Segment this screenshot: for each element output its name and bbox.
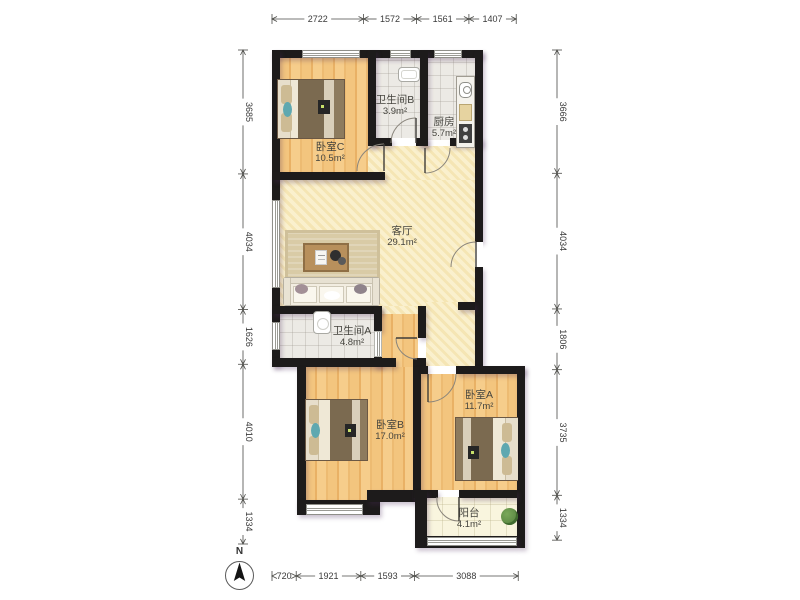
bed-pillow <box>502 423 512 442</box>
dimension-arrow <box>414 574 419 579</box>
entrance-door-opening <box>475 242 483 267</box>
dimension-arrow <box>555 370 560 375</box>
room-label-bedroom-c: 卧室C 10.5m² <box>315 141 345 165</box>
wall <box>374 306 382 331</box>
wall <box>475 50 483 242</box>
dimension-arrow <box>241 305 246 310</box>
dimension-arrow <box>241 50 246 55</box>
dimension-label: 1921 <box>318 571 338 581</box>
wall <box>420 50 428 146</box>
window-bathroom-b <box>390 50 411 58</box>
plant <box>501 508 518 525</box>
kitchen-counter <box>456 76 475 148</box>
room-name: 卧室B <box>375 419 405 431</box>
dimension-arrow <box>272 574 277 579</box>
room-area: 4.1m² <box>457 519 481 530</box>
bed-pillow-teal <box>311 423 320 438</box>
dimension-arrow <box>555 304 560 309</box>
dimension-arrow <box>241 174 246 179</box>
dimension-arrow <box>241 494 246 499</box>
window-bathroom-a <box>272 322 280 350</box>
room-area: 11.7m² <box>465 401 494 412</box>
wall <box>368 138 392 146</box>
compass-north-label: N <box>231 546 248 557</box>
room-name: 卧室A <box>465 389 494 401</box>
sofa-pillow <box>354 284 367 294</box>
dimension-arrow <box>469 17 474 22</box>
dimension-label: 1334 <box>244 512 254 532</box>
dimension-arrow <box>409 574 414 579</box>
bed-tray <box>345 424 356 437</box>
dimension-arrow <box>555 365 560 370</box>
dimension-arrow <box>511 17 516 22</box>
wall <box>418 306 426 338</box>
dimension-arrow <box>364 17 369 22</box>
dimension-arrow <box>464 17 469 22</box>
dimension-arrow <box>416 17 421 22</box>
bed-pillow <box>309 405 319 424</box>
wall <box>421 366 428 374</box>
dimension-arrow <box>555 535 560 540</box>
room-name: 卧室C <box>315 141 345 153</box>
sofa-pillow <box>295 284 308 294</box>
room-area: 17.0m² <box>375 431 405 442</box>
window-living-room <box>272 200 280 288</box>
dimension-arrow <box>296 574 301 579</box>
wall <box>517 366 525 548</box>
dimension-label: 2722 <box>308 14 328 24</box>
dimension-arrow <box>361 574 366 579</box>
window-bedroom-b <box>306 504 363 515</box>
bed-pillow <box>502 456 512 475</box>
dimension-label: 3088 <box>456 571 476 581</box>
window-bedroom-c <box>302 50 360 58</box>
room-area: 5.7m² <box>432 128 456 139</box>
wall <box>456 366 525 374</box>
kitchen-sink <box>459 82 472 98</box>
dimension-arrow <box>555 168 560 173</box>
kitchen-stove <box>459 124 472 143</box>
bathroom-a-door-opening <box>374 331 382 357</box>
wall <box>367 490 415 502</box>
room-area: 29.1m² <box>387 237 417 248</box>
wall <box>458 302 475 310</box>
sofa-throw <box>324 291 340 300</box>
dimension-arrow <box>356 574 361 579</box>
bed-bedroom-c <box>278 80 344 138</box>
sofa <box>283 277 380 306</box>
room-name: 厨房 <box>432 116 456 128</box>
dimension-label: 1407 <box>483 14 503 24</box>
table-decor <box>338 257 346 265</box>
bed-tray <box>468 446 479 459</box>
dimension-label: 4034 <box>558 231 568 251</box>
window-balcony <box>427 537 517 546</box>
room-label-bedroom-a: 卧室A 11.7m² <box>465 389 494 413</box>
room-label-bedroom-b: 卧室B 17.0m² <box>375 419 405 443</box>
bed-bedroom-b <box>306 400 367 460</box>
room-area: 3.9m² <box>376 106 415 117</box>
dimension-arrow <box>291 574 296 579</box>
dimension-label: 4010 <box>244 422 254 442</box>
dimension-arrow <box>555 50 560 55</box>
dimension-arrow <box>272 17 277 22</box>
bed-pillow-teal <box>283 102 292 117</box>
bed-pillow-teal <box>501 443 510 458</box>
compass <box>225 561 254 590</box>
table-paper <box>315 250 327 265</box>
room-name: 客厅 <box>387 225 417 237</box>
dimension-arrow <box>241 169 246 174</box>
coffee-table <box>303 243 349 272</box>
dimension-arrow <box>555 309 560 314</box>
room-area: 4.8m² <box>333 337 372 348</box>
room-name: 卫生间B <box>376 94 415 106</box>
wall <box>459 490 517 498</box>
room-label-living-room: 客厅 29.1m² <box>387 225 417 249</box>
dimension-arrow <box>555 490 560 495</box>
dimension-label: 3666 <box>558 102 568 122</box>
room-label-bathroom-a: 卫生间A 4.8m² <box>333 325 372 349</box>
bed-foot <box>456 418 463 480</box>
dimension-label: 1334 <box>558 508 568 528</box>
kitchen-board <box>459 104 472 121</box>
dimension-arrow <box>241 310 246 315</box>
floor-plan-canvas: 卧室C 10.5m² 卫生间B 3.9m² 厨房 5.7m² 客厅 29.1m²… <box>0 0 800 600</box>
window-kitchen <box>434 50 462 58</box>
wall <box>415 490 427 548</box>
room-name: 阳台 <box>457 507 481 519</box>
dimension-arrow <box>513 574 518 579</box>
dimension-arrow <box>241 499 246 504</box>
wall <box>475 267 483 367</box>
bed-foot <box>334 80 344 138</box>
room-label-bathroom-b: 卫生间B 3.9m² <box>376 94 415 118</box>
dimension-arrow <box>411 17 416 22</box>
dimension-arrow <box>359 17 364 22</box>
dimension-arrow <box>555 173 560 178</box>
dimension-label: 1806 <box>558 329 568 349</box>
wall <box>272 172 385 180</box>
dimension-label: 4034 <box>244 232 254 252</box>
dimension-arrow <box>241 539 246 544</box>
dimension-label: 3685 <box>244 102 254 122</box>
wall <box>297 367 306 509</box>
wall <box>272 358 396 367</box>
dimension-label: 3735 <box>558 422 568 442</box>
bed-bedroom-a <box>456 418 517 480</box>
washer-bathroom-a <box>313 311 331 334</box>
bed-pillow <box>309 436 319 455</box>
dimension-arrow <box>241 364 246 369</box>
room-area: 10.5m² <box>315 153 345 164</box>
room-label-kitchen: 厨房 5.7m² <box>432 116 456 140</box>
dimension-label: 1572 <box>380 14 400 24</box>
bed-tray <box>318 100 330 114</box>
dimension-label: 1593 <box>378 571 398 581</box>
room-name: 卫生间A <box>333 325 372 337</box>
dimension-label: 1561 <box>433 14 453 24</box>
dimension-label: 1626 <box>244 327 254 347</box>
room-label-balcony: 阳台 4.1m² <box>457 507 481 531</box>
dimension-arrow <box>241 359 246 364</box>
floor-living-opening <box>382 306 418 314</box>
floor-living-lower <box>426 302 475 366</box>
bed-foot <box>360 400 367 460</box>
dimension-arrow <box>555 495 560 500</box>
wall <box>413 367 421 500</box>
bathtub-bathroom-b <box>398 67 420 82</box>
dimension-label: 720 <box>277 571 292 581</box>
